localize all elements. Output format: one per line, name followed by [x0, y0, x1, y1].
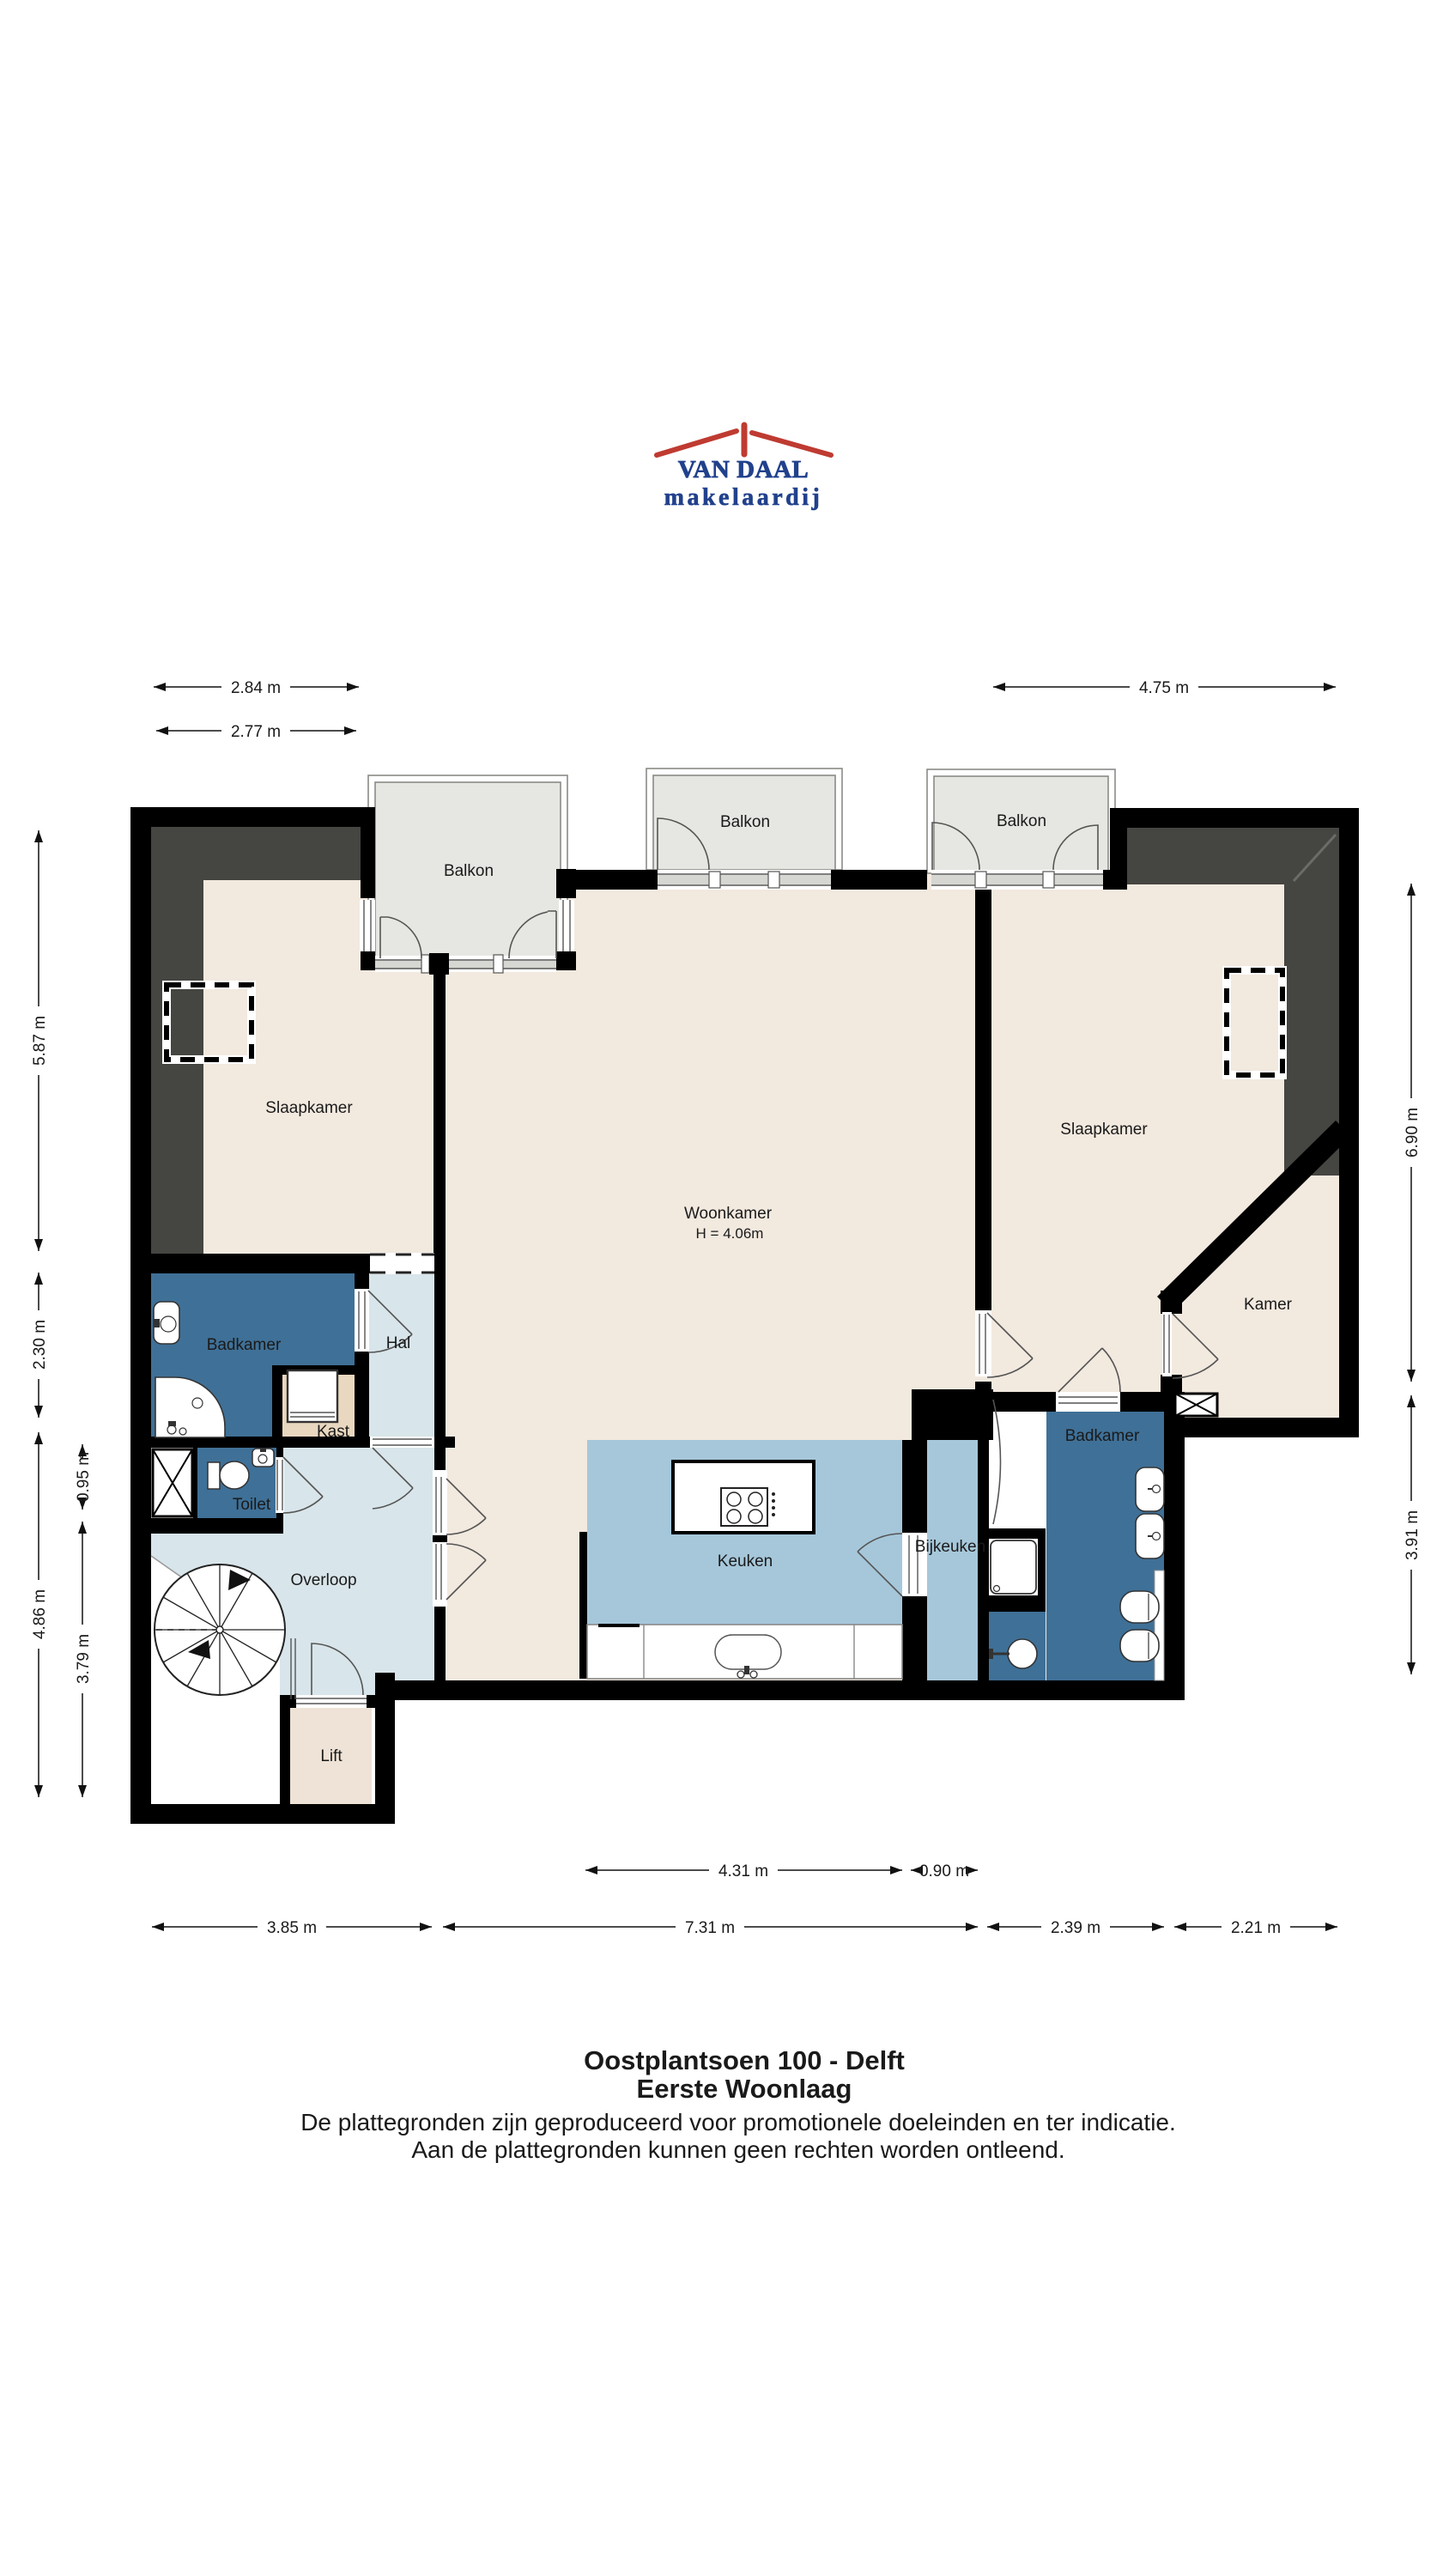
svg-text:VAN DAAL: VAN DAAL	[678, 456, 809, 483]
svg-text:0.95 m: 0.95 m	[75, 1452, 93, 1502]
svg-text:Slaapkamer: Slaapkamer	[1060, 1121, 1148, 1139]
svg-text:2.21 m: 2.21 m	[1231, 1919, 1281, 1937]
svg-text:Slaapkamer: Slaapkamer	[265, 1099, 353, 1117]
svg-text:Balkon: Balkon	[720, 813, 770, 831]
svg-text:Lift: Lift	[320, 1747, 343, 1765]
svg-text:0.90 m: 0.90 m	[919, 1862, 969, 1880]
svg-text:2.84 m: 2.84 m	[231, 679, 281, 697]
svg-text:3.85 m: 3.85 m	[267, 1919, 317, 1937]
svg-text:6.90 m: 6.90 m	[1404, 1108, 1422, 1157]
svg-text:2.77 m: 2.77 m	[231, 723, 281, 741]
svg-text:Kamer: Kamer	[1244, 1296, 1293, 1314]
svg-text:Badkamer: Badkamer	[207, 1336, 282, 1354]
svg-text:Keuken: Keuken	[718, 1552, 773, 1571]
svg-text:Balkon: Balkon	[997, 812, 1046, 830]
svg-text:Overloop: Overloop	[290, 1571, 356, 1589]
svg-text:2.39 m: 2.39 m	[1051, 1919, 1100, 1937]
svg-text:Woonkamer: Woonkamer	[684, 1205, 773, 1223]
svg-text:Kast: Kast	[317, 1423, 350, 1441]
svg-text:2.30 m: 2.30 m	[31, 1320, 49, 1370]
svg-text:7.31 m: 7.31 m	[685, 1919, 735, 1937]
svg-text:makelaardij: makelaardij	[664, 484, 823, 511]
svg-text:H = 4.06m: H = 4.06m	[696, 1225, 764, 1242]
svg-text:Badkamer: Badkamer	[1065, 1427, 1140, 1445]
svg-text:Toilet: Toilet	[233, 1496, 271, 1514]
svg-text:Hal: Hal	[386, 1334, 411, 1352]
svg-text:Aan de plattegronden kunnen ge: Aan de plattegronden kunnen geen rechten…	[411, 2136, 1064, 2163]
svg-text:Bijkeuken: Bijkeuken	[915, 1538, 985, 1556]
svg-text:4.31 m: 4.31 m	[718, 1862, 768, 1880]
svg-text:Oostplantsoen 100 - Delft: Oostplantsoen 100 - Delft	[584, 2045, 905, 2075]
svg-text:4.75 m: 4.75 m	[1139, 679, 1189, 697]
svg-text:De plattegronden zijn geproduc: De plattegronden zijn geproduceerd voor …	[300, 2109, 1176, 2136]
svg-text:Eerste Woonlaag: Eerste Woonlaag	[637, 2074, 852, 2104]
svg-text:3.79 m: 3.79 m	[75, 1634, 93, 1684]
svg-text:5.87 m: 5.87 m	[31, 1016, 49, 1066]
svg-text:Balkon: Balkon	[444, 862, 494, 880]
svg-text:4.86 m: 4.86 m	[31, 1589, 49, 1639]
svg-text:3.91 m: 3.91 m	[1404, 1510, 1422, 1560]
